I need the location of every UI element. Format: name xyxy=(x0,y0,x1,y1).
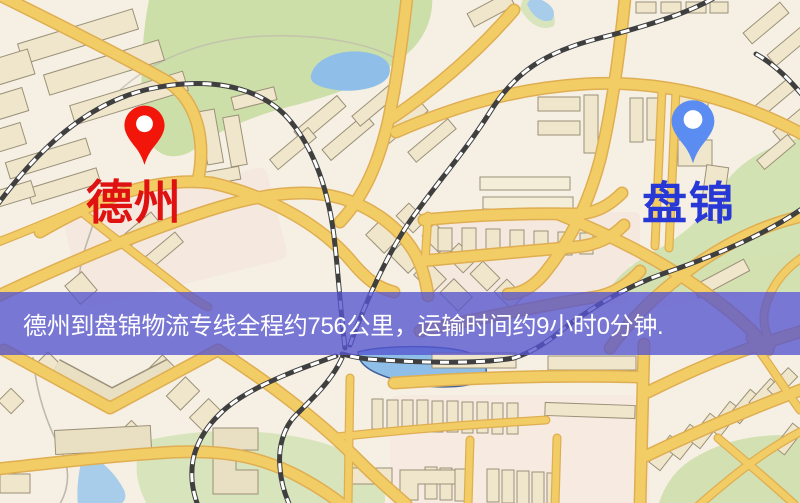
destination-city-label: 盘锦 xyxy=(642,181,736,226)
map-background xyxy=(0,0,800,503)
route-info-text: 德州到盘锦物流专线全程约756公里，运输时间约9小时0分钟. xyxy=(23,306,663,341)
origin-pin-icon[interactable] xyxy=(121,102,168,168)
destination-pin-icon[interactable] xyxy=(668,97,718,166)
logistics-route-map: 德州 盘锦 德州到盘锦物流专线全程约756公里，运输时间约9小时0分钟. xyxy=(0,0,800,503)
origin-city-label: 德州 xyxy=(86,179,182,226)
route-info-banner: 德州到盘锦物流专线全程约756公里，运输时间约9小时0分钟. xyxy=(0,292,800,355)
